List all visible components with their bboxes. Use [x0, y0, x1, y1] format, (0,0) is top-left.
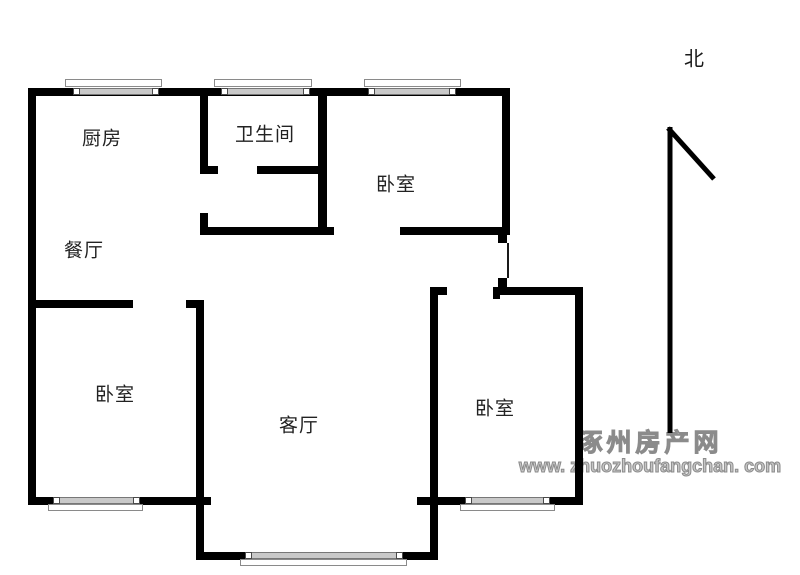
window-cap	[465, 497, 472, 504]
room-label-bedroom-se: 卧室	[475, 394, 515, 421]
window-cap	[152, 88, 159, 95]
window-glass	[73, 88, 159, 95]
wall-exterior-left	[28, 88, 36, 505]
window-sill	[65, 79, 162, 87]
wall-stub-upper	[498, 235, 507, 243]
room-label-kitchen: 厨房	[82, 124, 122, 151]
wall-kitchen-divider-upper	[200, 96, 208, 168]
opening-line	[507, 243, 509, 278]
watermark: 涿州房产网 www. zhuozhoufangchan. com	[515, 430, 785, 476]
wall-bathroom-inner	[257, 166, 321, 174]
room-label-bedroom-ne: 卧室	[376, 170, 416, 197]
window-cap	[133, 497, 140, 504]
wall-bedroom-se-top	[493, 287, 583, 295]
window-glass	[368, 88, 456, 95]
window-sill	[460, 504, 555, 511]
wall-bedroom-ne-right	[502, 88, 510, 235]
room-label-bathroom: 卫生间	[235, 120, 295, 147]
window-cap	[303, 88, 310, 95]
window-glass	[53, 497, 140, 504]
window-glass	[221, 88, 310, 95]
wall-living-right	[430, 287, 438, 560]
window-glass	[465, 497, 550, 504]
window-cap	[449, 88, 456, 95]
wall-vestibule-stub	[200, 166, 218, 174]
window-cap	[543, 497, 550, 504]
window-cap	[245, 552, 252, 559]
window-glass	[245, 552, 403, 559]
window-cap	[221, 88, 228, 95]
window-cap	[53, 497, 60, 504]
window-cap	[368, 88, 375, 95]
wall-bedroom-sw-top	[28, 300, 133, 308]
window-cap	[73, 88, 80, 95]
wall-stub-lower	[498, 278, 507, 287]
north-label: 北	[684, 43, 704, 72]
wall-living-right-top-tab	[430, 287, 447, 295]
room-label-bedroom-sw: 卧室	[95, 380, 135, 407]
floor-plan: 厨房 卫生间 卧室 餐厅 卧室 客厅 卧室 北 涿州房产网 www. zhuoz…	[0, 0, 800, 575]
window-sill	[48, 504, 143, 511]
wall-bathroom-right	[318, 96, 327, 235]
room-label-living: 客厅	[279, 411, 319, 438]
wall-living-left	[196, 300, 204, 560]
north-arrow-icon	[640, 118, 740, 443]
wall-bedroom-se-top-tab	[493, 287, 500, 299]
wall-vestibule-bottom	[200, 227, 334, 235]
wall-bedroom-ne-bottom	[400, 227, 510, 235]
window-sill	[240, 559, 407, 566]
watermark-url: www. zhuozhoufangchan. com	[515, 456, 785, 476]
watermark-site-name: 涿州房产网	[515, 430, 785, 456]
room-label-dining: 餐厅	[64, 236, 104, 263]
window-cap	[396, 552, 403, 559]
window-sill	[214, 79, 312, 87]
wall-crossing-tab	[417, 497, 430, 505]
window-sill	[364, 79, 461, 87]
